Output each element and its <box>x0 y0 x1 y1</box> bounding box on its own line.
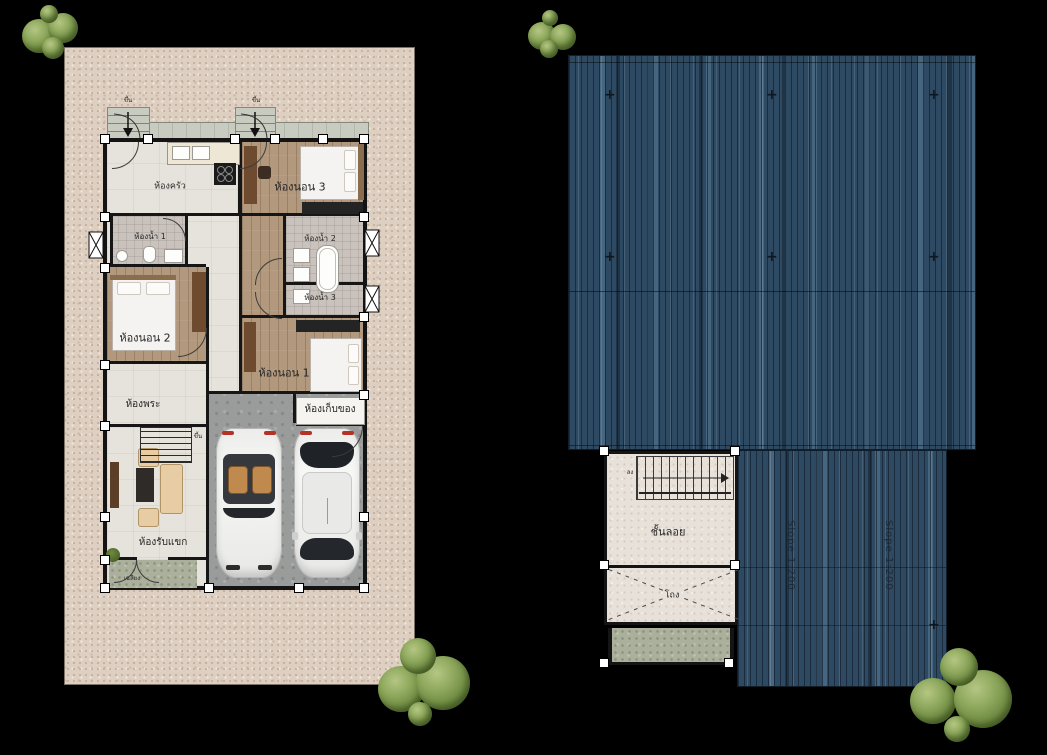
register-mark: + <box>766 88 778 102</box>
column <box>359 512 369 522</box>
kitchen-sink <box>172 146 190 160</box>
vent-symbol <box>364 285 380 313</box>
stair-up-label: ขึ้น <box>252 98 260 104</box>
mezzanine-label: ชั้นลอย <box>651 527 686 538</box>
column <box>730 560 740 570</box>
column <box>359 583 369 593</box>
column <box>724 658 734 668</box>
room-label-kitchen: ห้องครัว <box>154 183 186 192</box>
tree <box>910 648 1010 744</box>
wall <box>110 216 113 265</box>
column <box>359 390 369 400</box>
hall-label: โถง <box>663 592 682 601</box>
stairs <box>140 427 192 463</box>
wall <box>107 361 206 364</box>
wardrobe <box>244 322 256 372</box>
bed-pillow <box>348 344 359 363</box>
register-mark: + <box>604 88 616 102</box>
stair-up-label: ขึ้น <box>124 98 132 104</box>
vanity-sink <box>293 267 310 282</box>
column <box>359 312 369 322</box>
room-label-bedroom3: ห้องนอน 3 <box>274 182 325 193</box>
column <box>100 212 110 222</box>
wall <box>239 216 242 391</box>
column <box>359 212 369 222</box>
column <box>318 134 328 144</box>
column <box>270 134 280 144</box>
bed-pillow <box>344 172 356 192</box>
bathroom-sink <box>164 249 183 263</box>
column <box>143 134 153 144</box>
bathtub <box>316 245 339 293</box>
drawing-sheet: ขึ้น ขึ้น <box>0 0 1047 755</box>
room-label-prayer: ห้องพระ <box>126 400 161 410</box>
room-label-bath3: ห้องน้ำ 3 <box>304 294 336 302</box>
register-mark: + <box>928 618 940 632</box>
stove <box>214 163 236 185</box>
room-prayer <box>107 364 206 423</box>
sofa <box>160 464 183 514</box>
cabinet <box>296 320 360 332</box>
room-label-storage: ห้องเก็บของ <box>304 405 355 415</box>
bed-headboard <box>358 144 364 200</box>
column <box>100 134 110 144</box>
wardrobe <box>192 272 206 332</box>
vanity-sink <box>293 248 310 263</box>
bed-pillow <box>146 282 170 295</box>
mezzanine-porch <box>608 628 734 665</box>
bed-pillow <box>348 366 359 385</box>
wall <box>242 315 363 318</box>
porch-label: เฉลียง <box>124 576 140 582</box>
stair-up-label: ขึ้น <box>194 434 202 440</box>
column <box>730 446 740 456</box>
column <box>599 560 609 570</box>
kitchen-sink <box>192 146 210 160</box>
stair-down-label: ลง <box>626 470 635 476</box>
bed-pillow <box>117 282 141 295</box>
tree <box>22 5 86 59</box>
column <box>100 421 110 431</box>
slope-label: Slope 1:200 <box>883 520 894 591</box>
column <box>599 658 609 668</box>
register-mark: + <box>928 88 940 102</box>
column <box>294 583 304 593</box>
stool <box>116 250 128 262</box>
tree <box>378 638 472 728</box>
room-label-living: ห้องรับแขก <box>139 538 188 548</box>
column <box>100 512 110 522</box>
bed-pillow <box>344 150 356 170</box>
room-label-bath2: ห้องน้ำ 2 <box>304 235 336 243</box>
wall <box>206 391 209 586</box>
vent-symbol <box>88 231 104 259</box>
roof-plan: + + + + + + + Slope 1:200 Slope 1:200 ลง… <box>520 0 1047 755</box>
register-mark: + <box>928 250 940 264</box>
tree <box>528 10 580 60</box>
wall <box>107 264 206 267</box>
column <box>100 583 110 593</box>
vent-symbol <box>364 229 380 257</box>
column <box>100 263 110 273</box>
desk-chair <box>258 166 271 179</box>
column <box>204 583 214 593</box>
tv-cabinet <box>110 462 119 508</box>
mezzanine-stairs <box>636 456 734 500</box>
direction-arrow-icon <box>637 457 733 499</box>
column <box>599 446 609 456</box>
bed-headboard <box>110 275 176 280</box>
room-label-bedroom2: ห้องนอน 2 <box>119 333 170 344</box>
car-convertible <box>216 428 282 578</box>
register-mark: + <box>604 250 616 264</box>
room-label-bedroom1: ห้องนอน 1 <box>258 368 309 379</box>
column <box>359 134 369 144</box>
coffee-table <box>136 468 154 502</box>
column <box>230 134 240 144</box>
armchair <box>138 508 159 527</box>
column <box>100 360 110 370</box>
column <box>100 555 110 565</box>
toilet <box>143 246 156 263</box>
slope-label: Slope 1:200 <box>785 520 796 591</box>
wall <box>283 216 286 315</box>
wardrobe <box>302 202 363 214</box>
wall <box>107 213 238 216</box>
room-label-bath1: ห้องน้ำ 1 <box>134 233 166 241</box>
register-mark: + <box>766 250 778 264</box>
